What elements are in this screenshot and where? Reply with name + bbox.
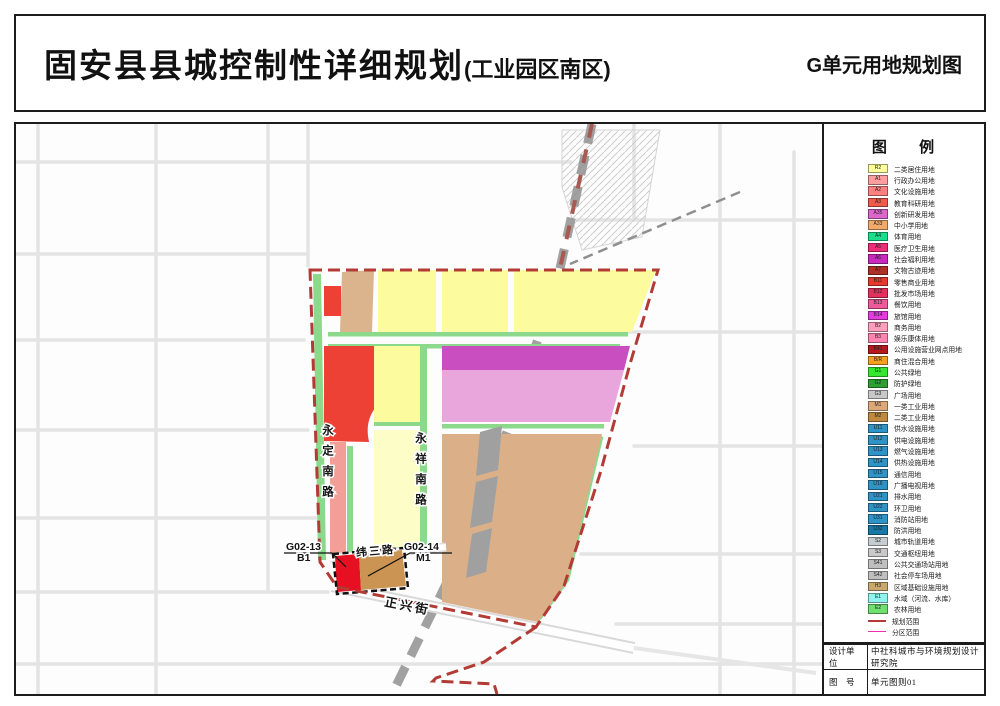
- legend-label: 规划范围: [892, 616, 919, 626]
- legend-row: A2 文化设施用地: [868, 186, 984, 197]
- legend-row: U14 供热设施用地: [868, 457, 984, 468]
- legend-swatch: U11: [868, 424, 888, 434]
- legend-swatch: H3: [868, 582, 888, 592]
- legend-label: 社会停车场用地: [894, 570, 942, 580]
- legend-swatch: E1: [868, 593, 888, 603]
- legend-row: E1 水域（河流、水库）: [868, 592, 984, 603]
- parcel-yellow-4: [374, 346, 420, 422]
- legend-row: 分区范围: [868, 626, 984, 637]
- title-bar: 固安县县城控制性详细规划(工业园区南区) G单元用地规划图: [14, 14, 986, 112]
- legend-label: 交通枢纽用地: [894, 548, 935, 558]
- legend-label: 防洪用地: [894, 525, 921, 535]
- legend-row: B2 商务用地: [868, 321, 984, 332]
- legend-swatch: S41: [868, 559, 888, 569]
- legend-label: 农林用地: [894, 604, 921, 614]
- legend-row: R2 二类居住用地: [868, 163, 984, 174]
- legend-swatch: U31: [868, 514, 888, 524]
- legend-label: 创新研发用地: [894, 209, 935, 219]
- legend-label: 城市轨道用地: [894, 536, 935, 546]
- legend-label: 环卫用地: [894, 503, 921, 513]
- legend-row: B/R 商住混合用地: [868, 355, 984, 366]
- legend-swatch: S3: [868, 548, 888, 558]
- sheet-title: G单元用地规划图: [806, 49, 962, 78]
- legend-label: 公共交通场站用地: [894, 559, 948, 569]
- legend-label: 社会福利用地: [894, 254, 935, 264]
- legend-label: 供热设施用地: [894, 457, 935, 467]
- parcel-violet-dark: [442, 346, 630, 370]
- titleblock-number-label: 图 号: [824, 669, 868, 694]
- legend-title: 图 例: [836, 136, 984, 157]
- parcel-label-g0214-use: M1: [416, 552, 431, 564]
- right-column: 图 例 R2 二类居住用地 A1 行政办公用地 A2 文化设施用地 A3 教育科…: [824, 124, 984, 694]
- legend-swatch: A5: [868, 243, 888, 253]
- legend-row: B13 餐饮用地: [868, 299, 984, 310]
- legend-swatch: U22: [868, 503, 888, 513]
- legend-row: S41 公共交通场站用地: [868, 558, 984, 569]
- content-box: 永定南路 永祥南路 纬三路 正兴街 G02-13 B1 G02-14 M1 图 …: [14, 122, 986, 696]
- legend-row: H3 区域基础设施用地: [868, 581, 984, 592]
- legend-row: A3 教育科研用地: [868, 197, 984, 208]
- legend-line-sample: [868, 620, 886, 622]
- legend-swatch: A35: [868, 209, 888, 219]
- legend-label: 广播电视用地: [894, 480, 935, 490]
- legend-swatch: U12: [868, 435, 888, 445]
- legend-swatch: U21: [868, 492, 888, 502]
- legend-row: U16 广播电视用地: [868, 479, 984, 490]
- legend-label: 供水设施用地: [894, 423, 935, 433]
- legend-label: 文物古迹用地: [894, 265, 935, 275]
- legend-label: 行政办公用地: [894, 175, 935, 185]
- legend-swatch: B13: [868, 299, 888, 309]
- legend-row: B3 娱乐康体用地: [868, 332, 984, 343]
- legend-swatch: U13: [868, 446, 888, 456]
- legend-swatch: B41: [868, 345, 888, 355]
- legend-row: S42 社会停车场用地: [868, 570, 984, 581]
- legend-label: 消防站用地: [894, 514, 928, 524]
- legend-row: U12 供电设施用地: [868, 434, 984, 445]
- legend-swatch: A2: [868, 186, 888, 196]
- legend-label: 文化设施用地: [894, 186, 935, 196]
- legend-row: A1 行政办公用地: [868, 174, 984, 185]
- legend-label: 餐饮用地: [894, 299, 921, 309]
- titleblock-number-value: 单元图则01: [868, 669, 984, 694]
- legend-panel: 图 例 R2 二类居住用地 A1 行政办公用地 A2 文化设施用地 A3 教育科…: [824, 124, 984, 644]
- legend-label: 商务用地: [894, 322, 921, 332]
- legend-swatch: B2: [868, 322, 888, 332]
- legend-row: A33 中小学用地: [868, 219, 984, 230]
- legend-label: 批发市场用地: [894, 288, 935, 298]
- legend-row: U21 排水用地: [868, 491, 984, 502]
- legend-label: 商住混合用地: [894, 356, 935, 366]
- legend-swatch: S42: [868, 571, 888, 581]
- legend-row: G3 广场用地: [868, 389, 984, 400]
- legend-swatch: R2: [868, 164, 888, 174]
- legend-swatch: E2: [868, 604, 888, 614]
- legend-row: U32 防洪用地: [868, 525, 984, 536]
- legend-row: S2 城市轨道用地: [868, 536, 984, 547]
- legend-swatch: M1: [868, 401, 888, 411]
- legend-row: B11 零售商业用地: [868, 276, 984, 287]
- parcel-yellow-2: [442, 270, 508, 332]
- page-title: 固安县县城控制性详细规划(工业园区南区): [44, 39, 611, 87]
- road-label-yongding: 永定南路: [321, 423, 335, 506]
- legend-row: 规划范围: [868, 615, 984, 626]
- legend-line-sample: [868, 631, 886, 632]
- legend-swatch: G1: [868, 367, 888, 377]
- parcel-red-small: [324, 286, 341, 316]
- titleblock-design-label: 设计单位: [824, 644, 868, 669]
- legend-label: 广场用地: [894, 390, 921, 400]
- legend-label: 教育科研用地: [894, 198, 935, 208]
- legend-row: A7 文物古迹用地: [868, 265, 984, 276]
- title-block: 设计单位 中社科城市与环境规划设计研究院 图 号 单元图则01: [824, 644, 984, 694]
- legend-row: U11 供水设施用地: [868, 423, 984, 434]
- legend-swatch: A1: [868, 175, 888, 185]
- legend-label: 旅馆用地: [894, 311, 921, 321]
- legend-label: 医疗卫生用地: [894, 243, 935, 253]
- legend-swatch: U14: [868, 458, 888, 468]
- legend-row: A6 社会福利用地: [868, 253, 984, 264]
- legend-row: B41 公用设施营业网点用地: [868, 344, 984, 355]
- legend-swatch: U16: [868, 480, 888, 490]
- legend-swatch: A33: [868, 220, 888, 230]
- legend-swatch: A4: [868, 232, 888, 242]
- legend-row: B12 批发市场用地: [868, 287, 984, 298]
- legend-swatch: S2: [868, 537, 888, 547]
- legend-row: S3 交通枢纽用地: [868, 547, 984, 558]
- titleblock-design-value: 中社科城市与环境规划设计研究院: [868, 644, 984, 669]
- legend-swatch: B14: [868, 311, 888, 321]
- legend-swatch: U32: [868, 525, 888, 535]
- legend-row: A35 创新研发用地: [868, 208, 984, 219]
- legend-row: U13 燃气设施用地: [868, 445, 984, 456]
- legend-swatch: A6: [868, 254, 888, 264]
- legend-items: R2 二类居住用地 A1 行政办公用地 A2 文化设施用地 A3 教育科研用地 …: [824, 163, 984, 637]
- legend-swatch: G2: [868, 379, 888, 389]
- parcel-violet-light: [442, 370, 624, 422]
- legend-label: 中小学用地: [894, 220, 928, 230]
- legend-row: U31 消防站用地: [868, 513, 984, 524]
- legend-row: B14 旅馆用地: [868, 310, 984, 321]
- legend-swatch: B3: [868, 333, 888, 343]
- legend-label: 供电设施用地: [894, 435, 935, 445]
- legend-label: 二类工业用地: [894, 412, 935, 422]
- legend-row: M2 二类工业用地: [868, 412, 984, 423]
- legend-swatch: B/R: [868, 356, 888, 366]
- legend-label: 通信用地: [894, 469, 921, 479]
- parcel-label-g0213-use: B1: [297, 552, 311, 564]
- legend-row: A5 医疗卫生用地: [868, 242, 984, 253]
- legend-row: U15 通信用地: [868, 468, 984, 479]
- legend-label: 区域基础设施用地: [894, 582, 948, 592]
- legend-swatch: U15: [868, 469, 888, 479]
- legend-row: M1 一类工业用地: [868, 400, 984, 411]
- legend-label: 娱乐康体用地: [894, 333, 935, 343]
- legend-label: 零售商业用地: [894, 277, 935, 287]
- legend-swatch: B12: [868, 288, 888, 298]
- legend-label: 燃气设施用地: [894, 446, 935, 456]
- map-panel: 永定南路 永祥南路 纬三路 正兴街 G02-13 B1 G02-14 M1: [16, 124, 824, 694]
- legend-label: 公用设施营业网点用地: [894, 344, 962, 354]
- legend-swatch: A3: [868, 198, 888, 208]
- parcel-tan-top: [340, 270, 374, 332]
- road-label-yongxiang: 永祥南路: [414, 431, 428, 514]
- planning-map: 永定南路 永祥南路 纬三路 正兴街 G02-13 B1 G02-14 M1: [16, 124, 822, 694]
- parcel-yellow-1: [378, 270, 436, 332]
- page-title-suffix: (工业园区南区): [464, 57, 611, 82]
- legend-row: G1 公共绿地: [868, 366, 984, 377]
- page-title-main: 固安县县城控制性详细规划: [44, 47, 464, 84]
- parcel-yellow-3: [514, 270, 656, 332]
- legend-label: 一类工业用地: [894, 401, 935, 411]
- legend-row: A4 体育用地: [868, 231, 984, 242]
- legend-label: 体育用地: [894, 231, 921, 241]
- legend-swatch: A7: [868, 266, 888, 276]
- legend-swatch: G3: [868, 390, 888, 400]
- legend-label: 分区范围: [892, 627, 919, 637]
- legend-label: 公共绿地: [894, 367, 921, 377]
- legend-label: 防护绿地: [894, 378, 921, 388]
- legend-label: 水域（河流、水库）: [894, 593, 955, 603]
- legend-row: G2 防护绿地: [868, 378, 984, 389]
- legend-swatch: M2: [868, 412, 888, 422]
- legend-row: E2 农林用地: [868, 604, 984, 615]
- legend-label: 排水用地: [894, 491, 921, 501]
- legend-row: U22 环卫用地: [868, 502, 984, 513]
- legend-swatch: B11: [868, 277, 888, 287]
- plan-sheet: 固安县县城控制性详细规划(工业园区南区) G单元用地规划图: [0, 0, 1000, 706]
- legend-label: 二类居住用地: [894, 164, 935, 174]
